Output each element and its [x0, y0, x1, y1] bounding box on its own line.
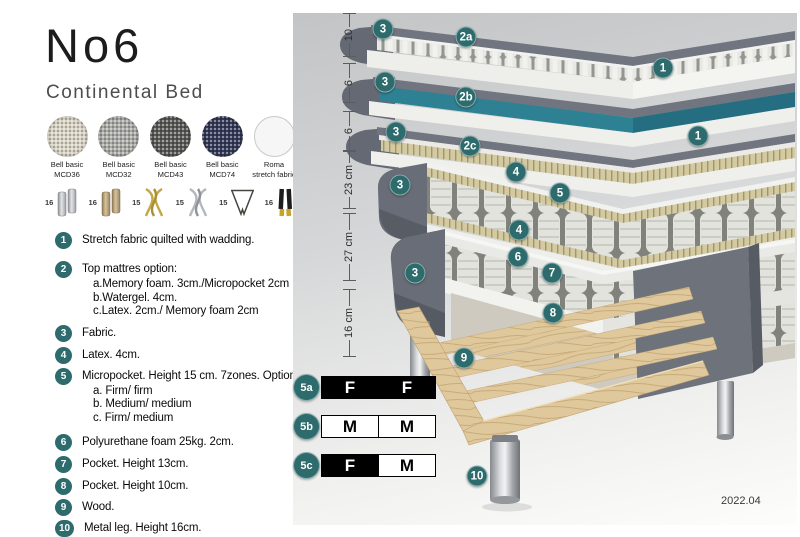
- version-label: 2022.04: [721, 495, 761, 507]
- feature-list: 1 Stretch fabric quilted with wadding. 2…: [55, 232, 307, 537]
- firmness-badge: 5c: [293, 452, 320, 479]
- callout-1: 1: [688, 126, 709, 147]
- leg-option-hairpin: 15: [219, 186, 255, 218]
- callout-2c: 2c: [460, 136, 481, 157]
- callout-9: 9: [454, 348, 475, 369]
- callout-3: 3: [405, 263, 426, 284]
- measurement-10: 10: [337, 13, 361, 57]
- callout-3: 3: [375, 72, 396, 93]
- swatch-mcd43: Bell basicMCD43: [147, 116, 195, 180]
- feature-number-badge: 2: [55, 261, 72, 278]
- list-item: 10 Metal leg. Height 16cm.: [55, 520, 307, 537]
- callout-3: 3: [390, 175, 411, 196]
- list-item: 9 Wood.: [55, 499, 307, 516]
- firmness-row-5c: 5c F M: [293, 452, 436, 479]
- leg-cylinder-silver-icon: [55, 186, 79, 218]
- list-item: 6 Polyurethane foam 25kg. 2cm.: [55, 434, 307, 451]
- measurement-6b: 6: [337, 111, 361, 151]
- callout-1: 1: [653, 58, 674, 79]
- feature-number-badge: 5: [55, 368, 72, 385]
- leg-cylinder-wood-icon: [99, 186, 123, 218]
- leg-hairpin-icon: [229, 186, 255, 218]
- leg-option-twisted-silver: 15: [176, 186, 210, 218]
- leg-option-cylinder-silver: 16: [45, 186, 79, 218]
- firmness-cell: F: [321, 454, 379, 477]
- feature-number-badge: 8: [55, 478, 72, 495]
- firmness-row-5b: 5b M M: [293, 413, 436, 440]
- feature-number-badge: 3: [55, 325, 72, 342]
- callout-4: 4: [509, 220, 530, 241]
- firmness-cell: M: [378, 415, 436, 438]
- firmness-cell: F: [378, 376, 436, 399]
- feature-number-badge: 6: [55, 434, 72, 451]
- firmness-table: 5a F F 5b M M 5c F M: [293, 374, 436, 491]
- feature-number-badge: 7: [55, 456, 72, 473]
- list-item: 3 Fabric.: [55, 325, 307, 342]
- leg-twisted-silver-icon: [186, 186, 210, 218]
- list-item: 5 Micropocket. Height 15 cm. 7zones. Opt…: [55, 368, 307, 426]
- leg-twisted-gold-icon: [142, 186, 166, 218]
- page-title: No6: [45, 18, 143, 73]
- callout-8: 8: [543, 303, 564, 324]
- measurement-27cm: 27 cm: [337, 213, 361, 281]
- swatch-mcd74: Bell basicMCD74: [198, 116, 246, 180]
- page-subtitle: Continental Bed: [46, 82, 204, 104]
- fabric-swatch-icon: [150, 116, 191, 157]
- measurement-6a: 6: [337, 63, 361, 103]
- firmness-badge: 5b: [293, 413, 320, 440]
- leg-options: 16 16 15 15: [45, 186, 295, 218]
- bed-diagram-panel: 10 6 6 23 cm 27 cm 16 cm 3 2a 1 3 2b 1 3…: [293, 13, 797, 525]
- firmness-cell: M: [321, 415, 379, 438]
- callout-7: 7: [542, 263, 563, 284]
- firmness-cell: F: [321, 376, 379, 399]
- list-item: 8 Pocket. Height 10cm.: [55, 478, 307, 495]
- feature-number-badge: 10: [55, 520, 74, 537]
- callout-3: 3: [386, 122, 407, 143]
- list-item: 2 Top mattres option: a.Memory foam. 3cm…: [55, 261, 307, 319]
- leg-option-straight-black-gold: 16: [265, 186, 295, 218]
- leg-option-cylinder-wood: 16: [89, 186, 123, 218]
- fabric-swatch-icon: [254, 116, 295, 157]
- fabric-swatch-icon: [202, 116, 243, 157]
- list-item: 7 Pocket. Height 13cm.: [55, 456, 307, 473]
- firmness-row-5a: 5a F F: [293, 374, 436, 401]
- callout-10: 10: [467, 466, 488, 487]
- feature-number-badge: 4: [55, 347, 72, 364]
- swatch-roma: Romastretch fabric: [250, 116, 298, 180]
- measurement-23cm: 23 cm: [337, 151, 361, 209]
- callout-6: 6: [508, 247, 529, 268]
- callout-3: 3: [373, 19, 394, 40]
- list-item: 4 Latex. 4cm.: [55, 347, 307, 364]
- callout-5: 5: [550, 183, 571, 204]
- callout-2a: 2a: [456, 27, 477, 48]
- swatch-mcd36: Bell basicMCD36: [43, 116, 91, 180]
- measurement-16cm: 16 cm: [337, 289, 361, 357]
- firmness-badge: 5a: [293, 374, 320, 401]
- list-item: 1 Stretch fabric quilted with wadding.: [55, 232, 307, 249]
- layer-wood-base: [397, 287, 734, 512]
- fabric-swatch-icon: [47, 116, 88, 157]
- callout-4: 4: [506, 162, 527, 183]
- info-column: No6 Continental Bed Bell basicMCD36 Bell…: [45, 0, 300, 533]
- fabric-swatch-icon: [98, 116, 139, 157]
- feature-number-badge: 1: [55, 232, 72, 249]
- firmness-cell: M: [378, 454, 436, 477]
- leg-black-gold-icon: [275, 186, 295, 218]
- leg-option-twisted-gold: 15: [132, 186, 166, 218]
- swatch-mcd32: Bell basicMCD32: [95, 116, 143, 180]
- feature-number-badge: 9: [55, 499, 72, 516]
- fabric-swatches: Bell basicMCD36 Bell basicMCD32 Bell bas…: [43, 116, 298, 180]
